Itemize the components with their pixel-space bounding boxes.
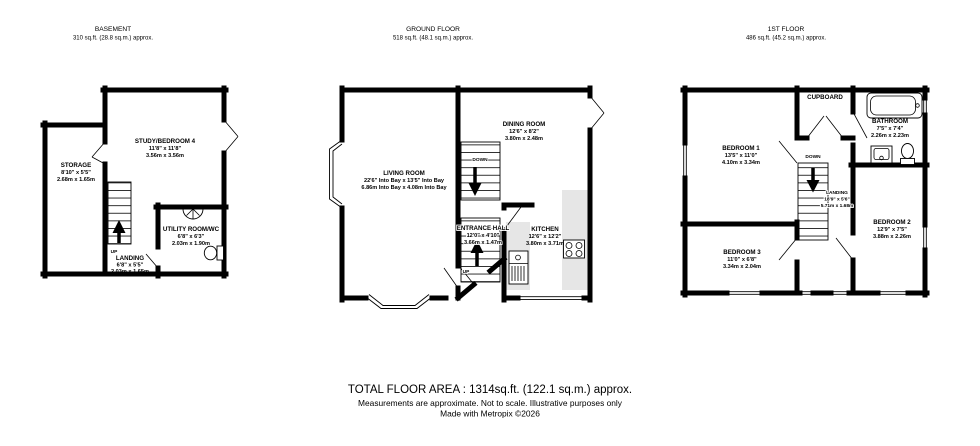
room-dims-m-landing: 5.71m x 1.68m — [821, 203, 854, 209]
first-title: 1ST FLOOR — [768, 26, 805, 33]
room-dims-m-bedroom2: 3.88m x 2.26m — [873, 234, 911, 240]
toilet-icon — [902, 144, 914, 159]
bathtub-icon — [867, 93, 922, 118]
cupboard-doors — [807, 116, 843, 138]
bedroom1-door — [779, 141, 797, 163]
room-dims-ft-storage: 8'10" x 5'5" — [61, 170, 91, 176]
room-label-hall: ENTRANCE HALL — [457, 225, 510, 232]
room-label-utility: UTILITY ROOM/WC — [163, 226, 220, 233]
room-label-cupboard: CUPBOARD — [807, 94, 843, 101]
basement-stairs — [108, 182, 131, 244]
room-dims-ft-dining: 12'6" x 8'2" — [509, 129, 539, 135]
room-dims-ft-bedroom2: 12'9" x 7'5" — [877, 227, 907, 233]
room-dims-ft-bathroom: 7'5" x 7'4" — [877, 126, 904, 132]
dining-french-door — [590, 96, 604, 130]
room-dims-ft-study: 11'8" x 11'8" — [149, 146, 182, 152]
living-room-door — [444, 268, 458, 288]
room-label-kitchen: KITCHEN — [531, 226, 559, 233]
study-french-door — [224, 120, 238, 153]
storage-door — [92, 142, 105, 164]
down-label: DOWN — [472, 157, 488, 163]
down-label: DOWN — [805, 154, 821, 160]
room-label-study: STUDY/BEDROOM 4 — [135, 138, 196, 145]
room-label-bedroom2: BEDROOM 2 — [873, 219, 911, 226]
disclaimer: Measurements are approximate. Not to sca… — [358, 398, 623, 408]
room-dims-ft-kitchen: 12'6" x 12'2" — [529, 234, 562, 240]
bay-window-left — [330, 140, 343, 208]
bedroom3-door — [779, 238, 797, 260]
up-label: UP — [463, 269, 470, 275]
toilet-icon — [204, 246, 216, 260]
kitchen-window — [518, 297, 584, 300]
room-dims-ft-landing: 6'8" x 5'5" — [117, 263, 144, 269]
floorplan-page: BASEMENT 310 sq.ft. (28.8 sq.m.) approx.… — [0, 0, 980, 446]
room-label-bedroom3: BEDROOM 3 — [723, 249, 761, 256]
toilet-cistern-icon — [217, 246, 224, 260]
room-label-landing: LANDING — [116, 255, 144, 262]
room-label-storage: STORAGE — [61, 162, 91, 169]
room-dims-m-study: 3.56m x 3.56m — [146, 153, 184, 159]
floorplan-canvas: BASEMENT 310 sq.ft. (28.8 sq.m.) approx.… — [0, 0, 980, 446]
bay-window-bottom — [366, 295, 432, 309]
room-dims-m-hall: 3.66m x 1.47m — [464, 240, 502, 246]
ground-floor-plan: GROUND FLOOR 518 sq.ft. (48.1 sq.m.) app… — [330, 26, 605, 309]
room-dims-m-storage: 2.68m x 1.65m — [57, 177, 95, 183]
room-dims-ft-hall: 12'0" x 4'10" — [467, 233, 500, 239]
bedroom2-side-window — [924, 225, 927, 250]
room-label-landing: LANDING — [826, 190, 848, 196]
bedroom2-window — [878, 292, 908, 295]
stairs-down-flight — [461, 142, 500, 200]
room-dims-ft-landing: 18'9" x 5'6" — [824, 197, 850, 203]
room-dims-m-bedroom1: 4.10m x 3.34m — [722, 160, 760, 166]
landing-window-b — [831, 292, 849, 295]
room-dims-m-bedroom3: 3.34m x 2.04m — [723, 264, 761, 270]
room-dims-ft-bedroom1: 13'5" x 11'0" — [725, 153, 758, 159]
total-floor-area: TOTAL FLOOR AREA : 1314sq.ft. (122.1 sq.… — [348, 384, 632, 396]
room-dims-m-bathroom: 2.26m x 2.23m — [871, 133, 909, 139]
bedroom1-window — [684, 143, 687, 178]
bathroom-window — [924, 98, 927, 115]
ground-stairs — [461, 142, 500, 282]
room-label-dining: DINING ROOM — [503, 121, 546, 128]
room-label-living: LIVING ROOM — [383, 170, 425, 177]
bedroom2-door — [836, 238, 853, 260]
first-floor-plan: 1ST FLOOR 486 sq.ft. (45.2 sq.m.) approx… — [683, 26, 927, 295]
room-dims-m-utility: 2.03m x 1.90m — [172, 241, 210, 247]
ground-title: GROUND FLOOR — [406, 26, 460, 33]
footer: TOTAL FLOOR AREA : 1314sq.ft. (122.1 sq.… — [348, 384, 632, 419]
toilet-cistern-icon — [901, 159, 915, 165]
ground-area-label: 518 sq.ft. (48.1 sq.m.) approx. — [393, 36, 473, 42]
room-label-bathroom: BATHROOM — [872, 118, 908, 125]
basement-area-label: 310 sq.ft. (28.8 sq.m.) approx. — [73, 36, 153, 42]
room-dims-m-living: 6.86m Into Bay x 4.08m Into Bay — [361, 185, 447, 191]
room-dims-ft-living: 22'6" Into Bay x 13'5" Into Bay — [364, 178, 445, 184]
first-area-label: 486 sq.ft. (45.2 sq.m.) approx. — [746, 36, 826, 42]
room-dims-m-landing: 2.03m x 1.65m — [111, 269, 149, 275]
bathroom-door — [853, 112, 867, 138]
room-label-bedroom1: BEDROOM 1 — [722, 145, 760, 152]
room-dims-ft-bedroom3: 11'0" x 6'8" — [727, 257, 757, 263]
room-dims-m-kitchen: 3.80m x 3.71m — [526, 241, 564, 247]
room-dims-m-dining: 3.80m x 2.48m — [505, 136, 543, 142]
basement-plan: BASEMENT 310 sq.ft. (28.8 sq.m.) approx.… — [43, 26, 238, 276]
bedroom3-window — [727, 292, 762, 295]
utility-door — [146, 254, 158, 268]
room-dims-ft-utility: 6'8" x 6'3" — [178, 234, 205, 240]
credit: Made with Metropix ©2026 — [440, 409, 540, 419]
basement-title: BASEMENT — [95, 26, 131, 33]
